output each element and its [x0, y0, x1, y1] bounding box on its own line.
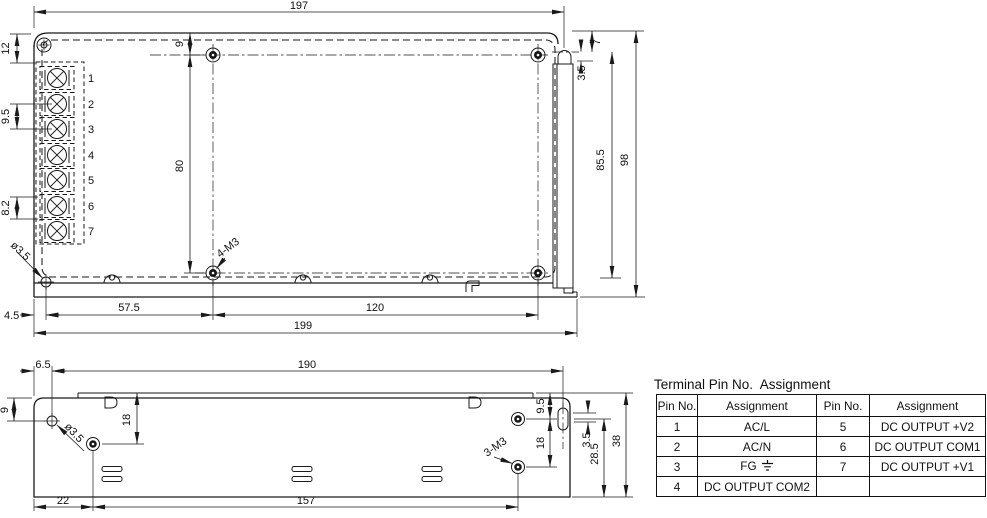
cover-screw-hole [37, 38, 51, 52]
pin-number [817, 477, 870, 497]
pin-assignment: DC OUTPUT +V2 [870, 417, 986, 437]
header-pin-no-left: Pin No. [657, 395, 698, 417]
dim-157: 157 [297, 495, 315, 507]
dim-38: 38 [611, 435, 623, 447]
side-m3-holes [87, 413, 525, 474]
terminal-number: 2 [88, 99, 94, 111]
terminal-number: 4 [88, 150, 94, 162]
pin-assignment: DC OUTPUT COM2 [698, 477, 817, 497]
dim-8-2: 8.2 [0, 200, 12, 215]
dim-98: 98 [619, 154, 631, 166]
pin-assignment-fg: FG [698, 457, 817, 477]
terminal-block: 1 2 3 4 [36, 62, 94, 244]
pin-assignment [870, 477, 986, 497]
dim-7: 7 [591, 39, 603, 45]
dim-4-5: 4.5 [4, 310, 19, 322]
dim-9: 9 [174, 41, 186, 47]
table-row: 2 AC/N 6 DC OUTPUT COM1 [657, 437, 986, 457]
earth-ground-icon [761, 459, 774, 475]
dim-3-5-top: 3.5 [576, 65, 588, 80]
dim-197: 197 [290, 0, 308, 12]
header-assignment-right: Assignment [870, 395, 986, 417]
terminal-5: 5 [40, 169, 94, 192]
dim-9-5-side: 9.5 [535, 398, 547, 413]
dim-4-m3: 4-M3 [215, 236, 242, 261]
side-view-dimensions: 6.5 190 9 18 ø3.5 22 157 9.5 18 3-M3 [0, 359, 633, 511]
table-row: 3 FG 7 DC OUTPUT +V1 [657, 457, 986, 477]
pin-number: 6 [817, 437, 870, 457]
dim-28-5: 28.5 [589, 443, 601, 464]
dim-22: 22 [57, 495, 69, 507]
table-row: 4 DC OUTPUT COM2 [657, 477, 986, 497]
m3-mounting-holes [206, 48, 545, 280]
dim-85-5: 85.5 [595, 149, 607, 170]
side-view: 6.5 190 9 18 ø3.5 22 157 9.5 18 3-M3 [0, 359, 633, 511]
header-assignment-left: Assignment [698, 395, 817, 417]
pin-assignment: AC/N [698, 437, 817, 457]
pin-number: 2 [657, 437, 698, 457]
terminal-number: 3 [88, 124, 94, 136]
pin-assignment: DC OUTPUT COM1 [870, 437, 986, 457]
dimension-drawing-page: 1 2 3 4 [0, 0, 987, 518]
terminal-1: 1 [40, 67, 94, 90]
dim-6-5: 6.5 [35, 359, 50, 371]
terminal-7: 7 [40, 220, 94, 243]
dim-57-5: 57.5 [118, 302, 139, 314]
pin-number: 4 [657, 477, 698, 497]
pin-assignment-table: Pin No. Assignment Pin No. Assignment 1 … [656, 394, 986, 497]
dim-199: 199 [294, 320, 312, 332]
terminal-number: 5 [88, 175, 94, 187]
dim-120: 120 [366, 302, 384, 314]
terminal-4: 4 [40, 144, 94, 167]
side-vents [102, 397, 481, 482]
pin-table-title: Terminal Pin No. Assignment [654, 377, 830, 392]
pin-assignment: DC OUTPUT +V1 [870, 457, 986, 477]
table-row: 1 AC/L 5 DC OUTPUT +V2 [657, 417, 986, 437]
dim-9-side: 9 [0, 407, 11, 413]
dim-3-m3: 3-M3 [482, 435, 509, 459]
pin-number: 5 [817, 417, 870, 437]
pin-number: 3 [657, 457, 698, 477]
terminal-number: 1 [88, 73, 94, 85]
dim-12: 12 [0, 42, 12, 54]
pin-number: 7 [817, 457, 870, 477]
dim-hole-dia: ø3.5 [8, 239, 32, 263]
dim-18-left: 18 [121, 414, 133, 426]
pin-assignment: AC/L [698, 417, 817, 437]
pin-table-header-row: Pin No. Assignment Pin No. Assignment [657, 395, 986, 417]
pin-number: 1 [657, 417, 698, 437]
terminal-number: 7 [88, 226, 94, 238]
dim-18-right: 18 [535, 437, 547, 449]
header-pin-no-right: Pin No. [817, 395, 870, 417]
dim-80: 80 [174, 160, 186, 172]
inner-dashed-outline [42, 40, 555, 277]
keyhole-slot-top [558, 51, 571, 58]
terminal-number: 6 [88, 201, 94, 213]
side-bracket [553, 64, 573, 288]
terminal-6: 6 [40, 195, 94, 218]
dim-9-5: 9.5 [0, 109, 12, 124]
dim-190: 190 [298, 359, 316, 371]
keyhole-slot-side [558, 403, 568, 449]
top-view-dimensions: 197 12 9.5 8.2 9 80 ø3.5 4-M3 [0, 0, 645, 337]
top-view: 1 2 3 4 [0, 0, 645, 337]
